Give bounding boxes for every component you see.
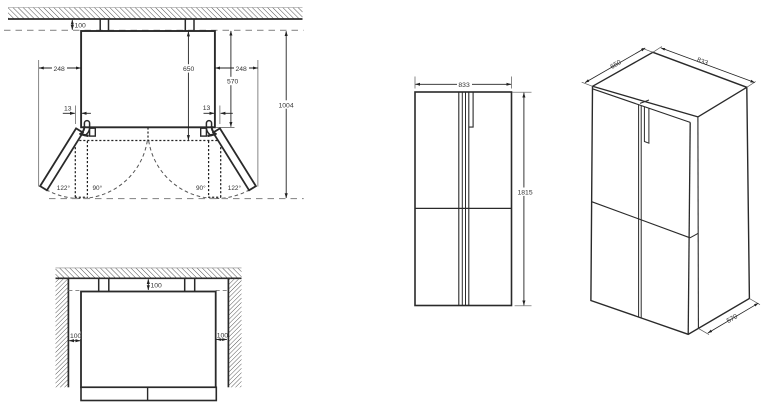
svg-text:100: 100: [75, 22, 87, 29]
svg-text:13: 13: [203, 105, 211, 112]
svg-text:1004: 1004: [279, 102, 294, 109]
svg-text:90°: 90°: [93, 184, 103, 192]
svg-text:100: 100: [70, 333, 82, 340]
svg-text:650: 650: [183, 66, 195, 73]
svg-text:122°: 122°: [57, 184, 71, 192]
svg-text:100: 100: [151, 283, 163, 290]
svg-text:248: 248: [236, 66, 248, 73]
svg-text:100: 100: [217, 333, 229, 340]
svg-text:13: 13: [64, 106, 72, 113]
svg-text:570: 570: [227, 79, 239, 86]
svg-text:833: 833: [458, 82, 470, 89]
svg-text:1815: 1815: [518, 190, 533, 197]
svg-text:570: 570: [726, 313, 740, 325]
svg-text:833: 833: [696, 57, 709, 68]
svg-text:248: 248: [54, 66, 66, 73]
svg-text:650: 650: [609, 59, 623, 71]
svg-text:122°: 122°: [228, 184, 242, 192]
svg-text:90°: 90°: [196, 184, 206, 192]
